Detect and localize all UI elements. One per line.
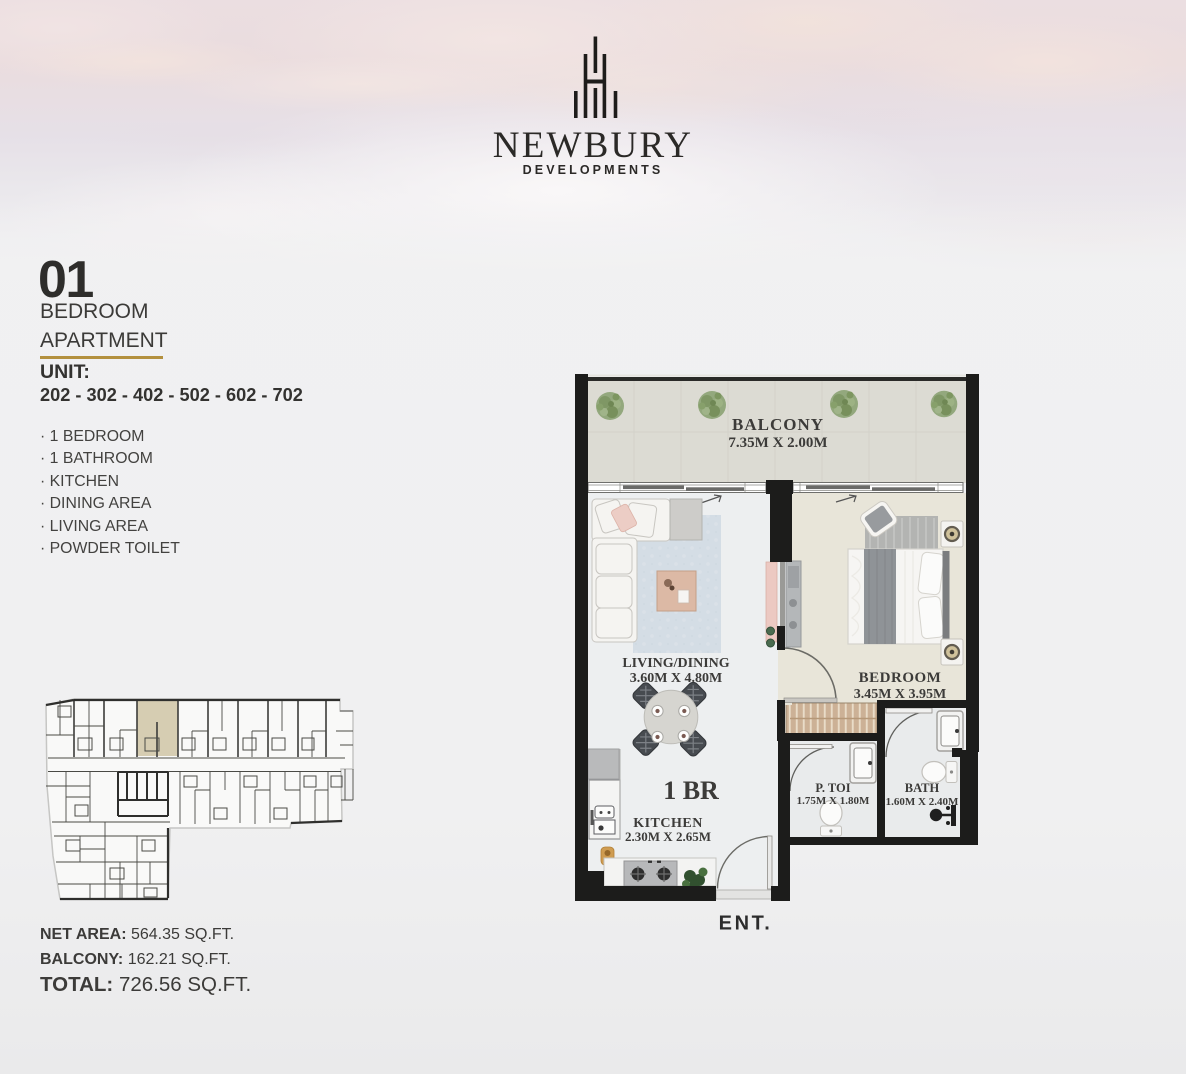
svg-text:1.60M X 2.40M: 1.60M X 2.40M [886, 796, 959, 808]
svg-text:3.60M X 4.80M: 3.60M X 4.80M [630, 671, 723, 686]
svg-text:ENT.: ENT. [719, 913, 773, 935]
svg-text:7.35M X 2.00M: 7.35M X 2.00M [728, 435, 827, 451]
svg-text:LIVING/DINING: LIVING/DINING [622, 656, 729, 671]
svg-text:3.45M X 3.95M: 3.45M X 3.95M [854, 687, 947, 702]
svg-text:1 BR: 1 BR [663, 776, 719, 805]
svg-text:2.30M X 2.65M: 2.30M X 2.65M [625, 829, 711, 844]
svg-text:P. TOI: P. TOI [815, 781, 850, 795]
svg-text:BEDROOM: BEDROOM [859, 670, 942, 686]
svg-text:BATH: BATH [905, 781, 940, 795]
svg-text:1.75M X 1.80M: 1.75M X 1.80M [797, 795, 870, 807]
svg-text:BALCONY: BALCONY [732, 415, 824, 434]
